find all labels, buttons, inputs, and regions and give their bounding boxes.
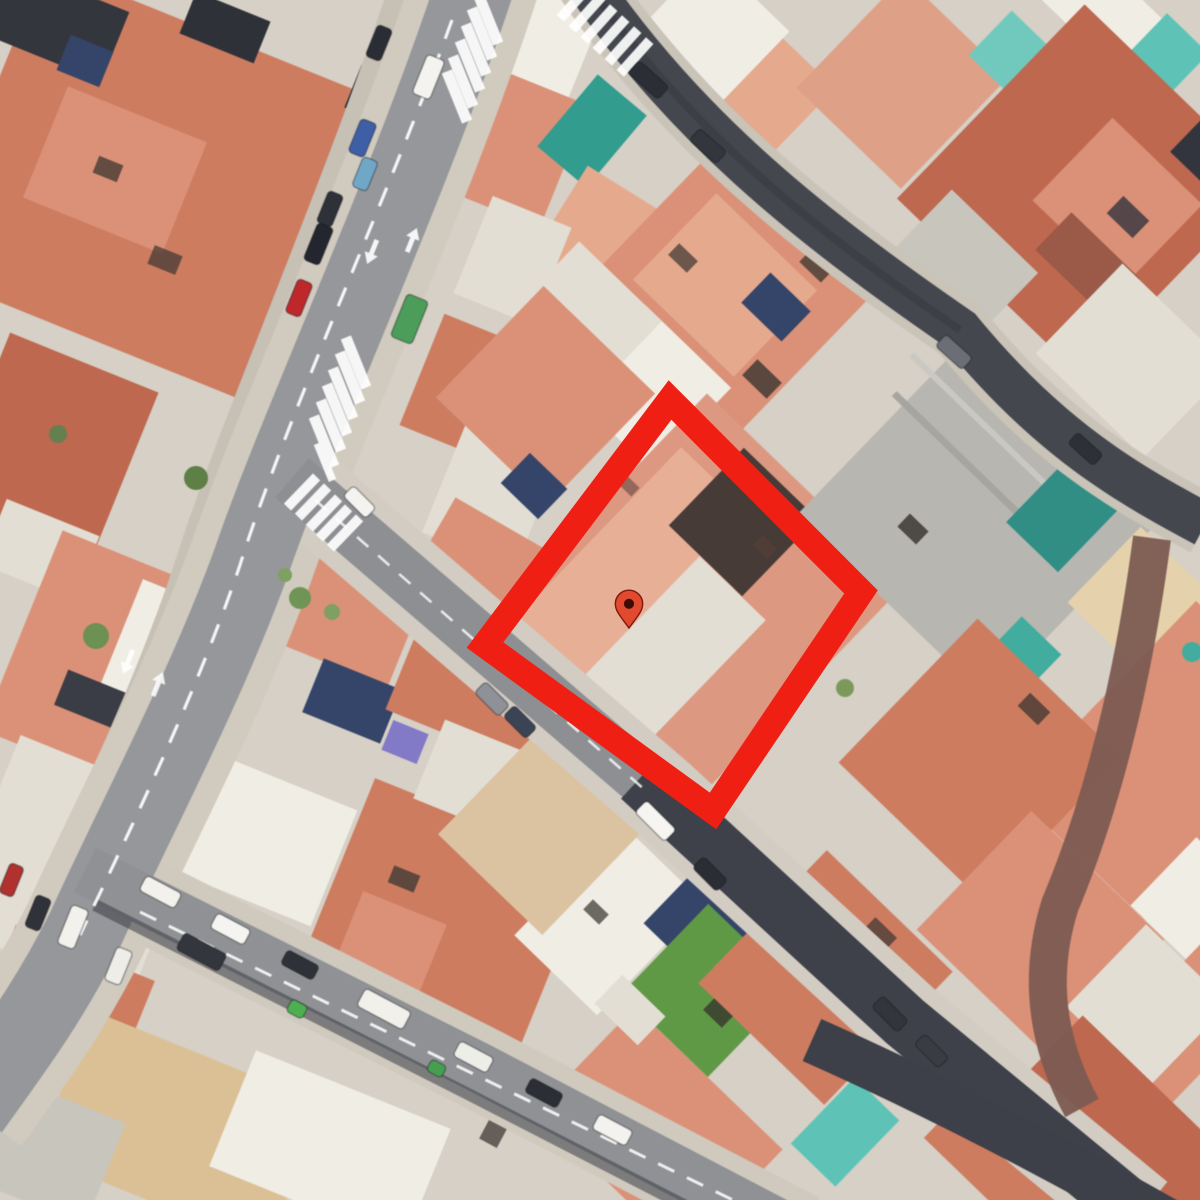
satellite-map-view[interactable]	[0, 0, 1200, 1200]
tree	[184, 466, 208, 490]
tree	[278, 568, 292, 582]
tree	[49, 425, 67, 443]
tree	[83, 623, 109, 649]
tree	[324, 604, 340, 620]
tree	[836, 679, 854, 697]
tree	[289, 587, 311, 609]
satellite-map-canvas[interactable]	[0, 0, 1200, 1200]
pin-center-dot	[624, 599, 634, 609]
